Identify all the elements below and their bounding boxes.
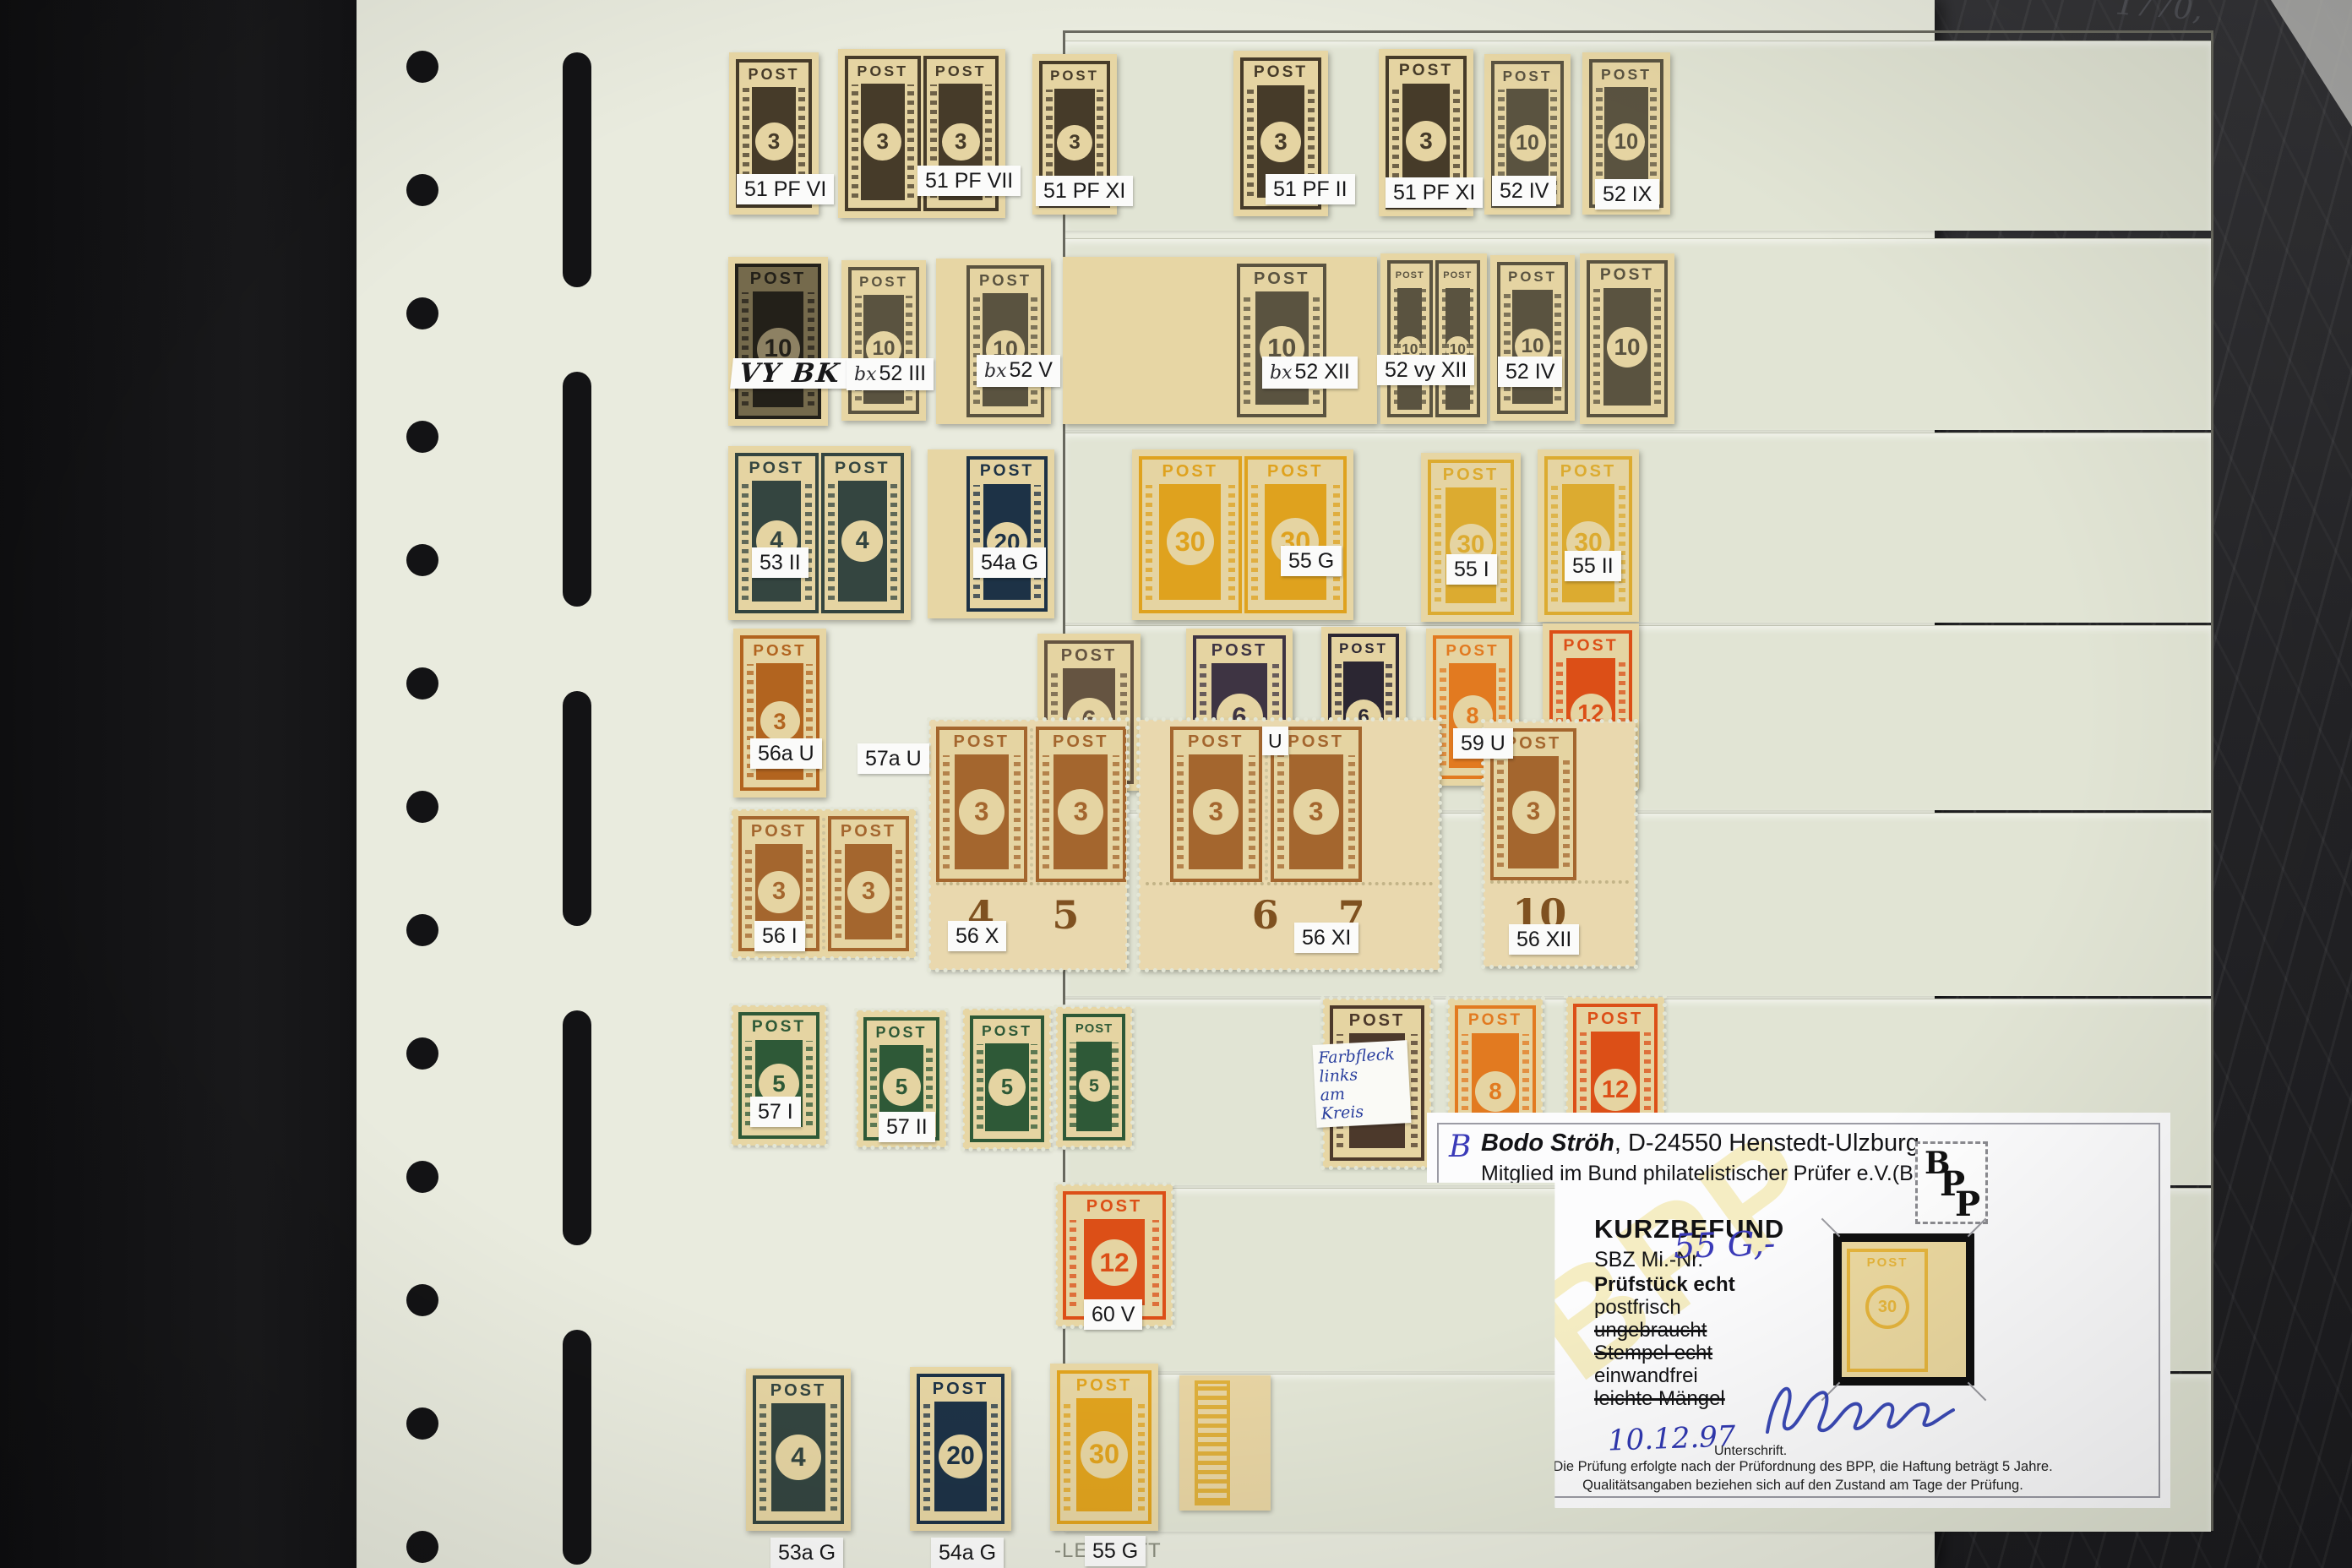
sheet-margin xyxy=(934,456,964,612)
stamp-post-word: POST xyxy=(848,59,917,83)
catalog-label: 56 X xyxy=(948,921,1006,951)
stamp-value: 3 xyxy=(1260,122,1301,162)
catalog-label: 54a G xyxy=(931,1538,1004,1568)
stamp-value-panel: 10 xyxy=(1603,288,1651,406)
stamp-post-word: POST xyxy=(1389,59,1463,83)
stamp-post-word: POST xyxy=(1066,1195,1162,1218)
binder-hole xyxy=(406,421,438,453)
binder-hole xyxy=(406,914,438,946)
stamp-value: 3 xyxy=(847,871,890,913)
partial-stamp-ornament xyxy=(1195,1380,1230,1505)
binder-slot xyxy=(563,691,591,926)
stamp-post-word: POST xyxy=(1436,639,1509,662)
catalog-label: 56 XI xyxy=(1294,923,1358,953)
stamp-value-panel: 10 xyxy=(753,291,803,407)
stamp-value-panel: 4 xyxy=(838,481,887,602)
stamp-design: POST3 xyxy=(1036,727,1127,882)
stamp-post-word: POST xyxy=(970,460,1044,483)
stamp-value-panel: 4 xyxy=(752,481,801,602)
stamp-post-word: POST xyxy=(1248,460,1344,483)
bpp-logo: B P P xyxy=(1915,1141,1988,1224)
stamp-value-panel: 3 xyxy=(845,844,892,939)
binder-slot xyxy=(563,52,591,287)
stamp-value-panel: 30 xyxy=(1265,484,1326,600)
catalog-label: 57a U xyxy=(857,743,929,774)
catalog-label: 52 IV xyxy=(1492,176,1556,206)
stamp-value: 10 xyxy=(1608,123,1645,161)
catalog-label: 52 IV xyxy=(1498,357,1562,387)
stamp-value: 5 xyxy=(988,1069,1026,1106)
stamp-design: POST10 xyxy=(1497,262,1568,414)
stamp-value: 3 xyxy=(959,789,1004,835)
stamp-value-panel: 3 xyxy=(1508,756,1559,868)
stamp-design: POST30 xyxy=(1139,456,1242,613)
catalog-label: 53a G xyxy=(770,1538,843,1568)
stamp-value: 20 xyxy=(939,1435,983,1478)
examiner-name: Bodo Ströh, D-24550 Henstedt-Ulzburg xyxy=(1481,1130,1919,1157)
label-handwritten-prefix: bx xyxy=(854,364,877,385)
stamp-value-panel: 10 xyxy=(1445,288,1470,410)
photo-stamp-value: 30 xyxy=(1865,1285,1909,1329)
stamp-design: POST20 xyxy=(966,456,1048,612)
binder-hole xyxy=(406,51,438,83)
stamp-design: POST10 xyxy=(1387,260,1433,417)
catalog-label: 55 G xyxy=(1085,1536,1146,1566)
examiner-signature xyxy=(1761,1366,1980,1446)
stamp-design: POST3 xyxy=(845,56,921,211)
stamp-post-word: POST xyxy=(867,1021,936,1044)
stamp-post-word: POST xyxy=(1196,639,1282,662)
catalog-label: 53 II xyxy=(752,547,808,578)
photo-stamp-post-word: POST xyxy=(1850,1255,1925,1270)
stamp-value: 3 xyxy=(1293,789,1339,835)
finding-line: einwandfrei xyxy=(1594,1364,1735,1387)
stamp: POST30 xyxy=(1421,453,1521,622)
stamp-post-word: POST xyxy=(1060,1374,1148,1397)
stamp-value-panel: 3 xyxy=(955,754,1009,869)
stamp-value: 3 xyxy=(1512,791,1555,834)
catalog-label: 51 PF XI xyxy=(1036,176,1133,206)
stamp: POST20 xyxy=(928,449,1054,618)
stamp-design: POST5 xyxy=(970,1015,1044,1142)
sheet-margin xyxy=(1070,264,1234,417)
stamp-value: 3 xyxy=(863,123,901,161)
examiner-name-bold: Bodo Ströh xyxy=(1481,1130,1614,1157)
stamp: POST10 xyxy=(1580,253,1674,424)
photo-stamp-design: POST 30 xyxy=(1847,1249,1928,1372)
album-page: 1770, POST3POST3POST3POST3POST3POST3POST… xyxy=(357,0,1935,1568)
sheet-margin xyxy=(1329,264,1370,417)
binder-slot xyxy=(563,1010,591,1245)
stamp-value: 12 xyxy=(1092,1239,1138,1286)
stamp-post-word: POST xyxy=(1548,460,1629,483)
stamp-post-word: POST xyxy=(973,1019,1041,1043)
stamp-value-panel: 30 xyxy=(1445,487,1496,603)
sheet-margin xyxy=(1146,727,1168,882)
stamp: POST10 xyxy=(1490,255,1575,421)
stamp: POST30POST30 xyxy=(1132,449,1353,620)
stamp-post-word: POST xyxy=(1240,267,1323,291)
binder-hole xyxy=(406,1037,438,1070)
stamp-post-word: POST xyxy=(742,819,816,843)
stamp-post-word: POST xyxy=(831,819,906,843)
stamp-design: POST3 xyxy=(936,727,1027,882)
stamp-post-word: POST xyxy=(1333,1009,1421,1032)
stamp: POST30 xyxy=(1050,1364,1158,1531)
stamp-post-word: POST xyxy=(1494,64,1560,88)
catalog-label: 51 PF II xyxy=(1266,174,1355,204)
stamp: POST3 xyxy=(733,629,826,798)
stamp-post-word: POST xyxy=(1173,730,1259,754)
stamp-post-word: POST xyxy=(1431,463,1511,487)
stamp-post-word: POST xyxy=(1244,61,1318,84)
stamp-value: 3 xyxy=(1058,789,1103,835)
stamp-value: 30 xyxy=(1167,518,1214,565)
stamp-value: 8 xyxy=(1475,1071,1516,1112)
stamp: POST30 xyxy=(1538,449,1639,622)
sheet-margin-number: 6 xyxy=(1252,892,1279,938)
stamp-value-panel: 10 xyxy=(1397,288,1422,410)
label-handwritten-prefix: bx xyxy=(984,361,1007,382)
margin-block-stamps: POST3POST3 xyxy=(936,727,1120,882)
label-handwritten-prefix: bx xyxy=(1270,362,1293,384)
handwritten-mark: B xyxy=(1449,1130,1471,1164)
stamp-post-word: POST xyxy=(1048,644,1130,667)
catalog-label: 55 I xyxy=(1446,554,1497,585)
stamp-post-word: POST xyxy=(739,63,808,86)
catalog-label: 59 U xyxy=(1453,728,1513,759)
stamp-post-word: POST xyxy=(927,59,996,83)
finding-line-struck: ungebraucht xyxy=(1594,1319,1735,1342)
stamp-design: POST30 xyxy=(1057,1370,1151,1524)
stamp-value: 30 xyxy=(1081,1431,1128,1478)
stamp-post-word: POST xyxy=(1458,1009,1533,1032)
stamp-design: POST10 xyxy=(735,264,821,419)
stamp-value: 3 xyxy=(755,122,793,161)
catalog-label: U xyxy=(1262,727,1288,755)
catalog-label: bx52 V xyxy=(977,355,1060,387)
binder-hole xyxy=(406,1407,438,1440)
catalog-label: 55 G xyxy=(1281,546,1342,576)
stamp-value: 12 xyxy=(1594,1069,1636,1111)
fine-print-line2: Qualitätsangaben beziehen sich auf den Z… xyxy=(1461,1476,2145,1494)
catalog-label: 51 PF VII xyxy=(917,166,1021,196)
stamp-design: POST30 xyxy=(1244,456,1347,613)
stamp-design: POST10 xyxy=(966,265,1044,417)
binder-slot xyxy=(563,372,591,607)
stamp-post-word: POST xyxy=(1066,1017,1122,1041)
membership-line: Mitglied im Bund philatelistischer Prüfe… xyxy=(1481,1162,1948,1186)
stamp-post-word: POST xyxy=(1391,264,1429,287)
stamp-post-word: POST xyxy=(738,267,818,291)
binder-hole xyxy=(406,1284,438,1316)
stamp-post-word: POST xyxy=(1331,637,1396,661)
catalog-label: 51 PF VI xyxy=(737,174,834,204)
finding-line-struck: leichte Mängel xyxy=(1594,1387,1735,1410)
stamp-value: 10 xyxy=(1607,327,1647,367)
stamp-album-photo: 1770, POST3POST3POST3POST3POST3POST3POST… xyxy=(0,0,2352,1568)
stamp-value: 3 xyxy=(1193,789,1239,835)
stamp-design: POST4 xyxy=(753,1375,844,1524)
stamp-design: POST20 xyxy=(917,1374,1004,1524)
stamp-design: POST5 xyxy=(1063,1014,1125,1141)
stamp-post-word: POST xyxy=(852,270,916,294)
catalog-label: 57 II xyxy=(879,1112,935,1142)
sheet-margin xyxy=(1364,727,1444,882)
binder-hole xyxy=(406,174,438,206)
stamp-design: POST3 xyxy=(1170,727,1262,882)
stamp-value-panel: 12 xyxy=(1084,1219,1146,1305)
stamp-value-panel: 30 xyxy=(1076,1398,1133,1511)
stamp-post-word: POST xyxy=(825,456,901,480)
binder-slot xyxy=(563,1330,591,1565)
stamp-value: 3 xyxy=(1057,125,1092,161)
stamp: POST10 xyxy=(728,257,828,426)
catalog-label: 55 II xyxy=(1565,551,1621,581)
stamp: POST5 xyxy=(963,1009,1051,1149)
catalog-label: 56 XII xyxy=(1509,924,1579,955)
findings-list: Prüfstück echtpostfrischungebrauchtStemp… xyxy=(1594,1273,1735,1410)
stamp: POST10 xyxy=(841,260,926,421)
stamp-post-word: POST xyxy=(970,269,1041,292)
stamp-value-panel: 5 xyxy=(985,1043,1028,1131)
stamp-value-panel: 30 xyxy=(1159,484,1221,600)
stamp: POST10 xyxy=(1063,257,1377,424)
fine-print: Die Prüfung erfolgte nach der Prüfordnun… xyxy=(1461,1457,2145,1494)
stamp-value: 3 xyxy=(758,871,800,913)
stamp-value-panel: 4 xyxy=(771,1403,825,1511)
catalog-label: 54a G xyxy=(973,547,1046,578)
stamp-design: POST30 xyxy=(1544,456,1632,615)
catalog-label: 51 PF XI xyxy=(1386,177,1483,208)
stamp-value-panel: 3 xyxy=(1053,754,1108,869)
stamp-post-word: POST xyxy=(1142,460,1239,483)
stamp: POST4POST4 xyxy=(728,446,911,620)
stamp-post-word: POST xyxy=(939,730,1024,754)
stamp-value: 3 xyxy=(942,123,980,161)
handwritten-note: FarbflecklinksamKreis xyxy=(1313,1040,1412,1128)
stamp: POST10 xyxy=(936,259,1051,424)
stamp-design: POST10 xyxy=(1587,260,1668,417)
binder-hole xyxy=(406,667,438,700)
sheet-margin xyxy=(943,265,964,417)
stamp-post-word: POST xyxy=(743,639,816,662)
binder-hole xyxy=(406,1531,438,1563)
catalog-label: VY BK xyxy=(730,358,850,389)
stamp-post-word: POST xyxy=(742,1015,816,1039)
stamp-design: POST4 xyxy=(735,453,819,613)
catalog-label: bx52 III xyxy=(847,358,934,390)
finding-line: postfrisch xyxy=(1594,1296,1735,1319)
backdrop-left xyxy=(0,0,357,1568)
margin-block-stamps: POST3POST3 xyxy=(1146,727,1433,882)
stamp: POST4 xyxy=(746,1369,851,1531)
binder-hole xyxy=(406,297,438,329)
stamp-post-word: POST xyxy=(1039,730,1124,754)
binder-hole xyxy=(406,544,438,576)
stamp-design: POST30 xyxy=(1428,460,1514,615)
sheet-margin xyxy=(1579,728,1631,880)
stamp-design: POST10 xyxy=(1237,264,1326,417)
stamp-post-word: POST xyxy=(1576,1007,1654,1031)
stamp-value-panel: 3 xyxy=(1189,754,1243,869)
stamp-value-panel: 20 xyxy=(934,1402,986,1511)
stamp-value: 3 xyxy=(1406,121,1446,161)
catalog-label: 57 I xyxy=(750,1097,801,1127)
stamp: POST5 xyxy=(1056,1007,1132,1147)
binder-hole xyxy=(406,1161,438,1193)
stamp-value-panel: 30 xyxy=(1562,484,1614,602)
stamp-post-word: POST xyxy=(756,1379,841,1402)
perforation-separator xyxy=(1030,728,1033,880)
stamp-post-word: POST xyxy=(920,1377,1001,1401)
stamp-post-word: POST xyxy=(738,456,815,480)
stamp-post-word: POST xyxy=(1592,63,1660,86)
stamp-post-word: POST xyxy=(1590,264,1664,287)
examiner-address: , D-24550 Henstedt-Ulzburg xyxy=(1614,1130,1919,1157)
stamp-value: 5 xyxy=(1079,1070,1110,1102)
finding-line-struck: Stempel echt xyxy=(1594,1342,1735,1364)
perforation-separator xyxy=(822,818,825,950)
stamp-design: POST3 xyxy=(828,816,909,951)
stamp-design: POST4 xyxy=(821,453,905,613)
note-line: Kreis xyxy=(1320,1100,1406,1123)
stamp-value-panel: 20 xyxy=(983,484,1031,600)
sheet-margin-block: POST3POST367 xyxy=(1139,720,1440,970)
sheet-margin-strip: 67 xyxy=(1146,882,1433,963)
catalog-label: 60 V xyxy=(1084,1299,1142,1330)
catalog-label: bx52 XII xyxy=(1262,357,1358,389)
finding-line: Prüfstück echt xyxy=(1594,1273,1735,1296)
stamp-post-word: POST xyxy=(1439,264,1478,287)
catalog-label: 56a U xyxy=(750,738,822,769)
stamp: POST20 xyxy=(910,1367,1011,1531)
stamp-photo: POST 30 xyxy=(1833,1233,1974,1386)
stamp-value-panel: 5 xyxy=(1076,1042,1112,1131)
binder-hole xyxy=(406,791,438,823)
stamp-design: POST10 xyxy=(848,267,919,414)
stamp-value: 4 xyxy=(776,1435,821,1480)
stamp-post-word: POST xyxy=(1043,64,1107,88)
stamp-value-panel: 10 xyxy=(983,293,1028,406)
fine-print-line1: Die Prüfung erfolgte nach der Prüfordnun… xyxy=(1461,1457,2145,1476)
stamp: POST10POST10 xyxy=(1380,253,1487,424)
stamp-design: POST10 xyxy=(1435,260,1481,417)
sheet-margin-number: 5 xyxy=(1052,892,1079,938)
catalog-label: 52 vy XII xyxy=(1377,355,1474,385)
overlapping-stamp-paper xyxy=(1179,1375,1271,1511)
subject-handwritten: 55 G,- xyxy=(1673,1224,1776,1266)
stamp-value-panel: 3 xyxy=(1289,754,1343,869)
stamp-value: 10 xyxy=(1510,125,1546,161)
stamp-value: 5 xyxy=(883,1068,921,1106)
stamp-value: 4 xyxy=(841,520,883,562)
catalog-label: 52 IX xyxy=(1595,179,1659,210)
stamp-value-panel: 3 xyxy=(861,84,905,200)
stamp-post-word: POST xyxy=(1553,634,1629,657)
catalog-label: 56 I xyxy=(754,921,805,951)
stamp-post-word: POST xyxy=(1500,265,1565,289)
stamp-value: 3 xyxy=(760,701,800,741)
